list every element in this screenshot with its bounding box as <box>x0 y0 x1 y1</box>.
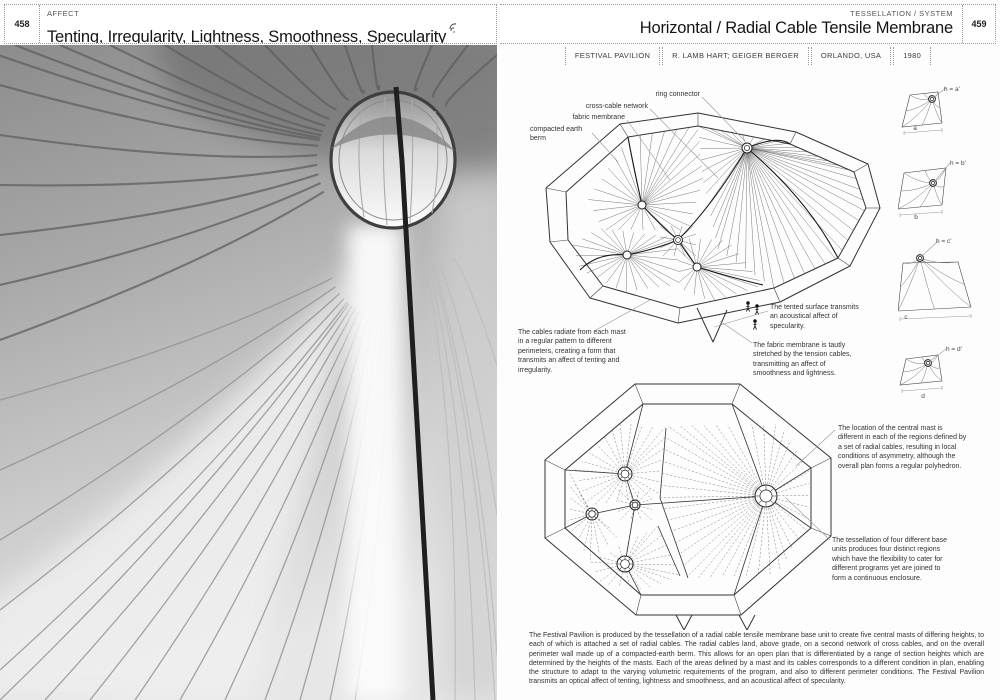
left-page-title: Tenting, Irregularity, Lightness, Smooth… <box>47 19 489 43</box>
left-page-number: 458 <box>5 5 40 43</box>
right-page-header: TESSELLATION / SYSTEM Horizontal / Radia… <box>500 4 996 44</box>
right-section-label: TESSELLATION / SYSTEM <box>507 9 953 18</box>
unit-d-height-label: h = d' <box>946 346 962 353</box>
annotation-cables-radiate: The cables radiate from each mast in a r… <box>518 328 632 375</box>
unit-b-base-label: b <box>914 214 918 221</box>
affect-wave-icon <box>449 19 460 38</box>
book-spread: 458 AFFECT Tenting, Irregularity, Lightn… <box>0 0 1000 700</box>
right-page-title: Horizontal / Radial Cable Tensile Membra… <box>507 19 953 38</box>
project-year: 1980 <box>893 47 931 65</box>
unit-a-height-label: h = a' <box>944 86 960 93</box>
body-text: The Festival Pavilion is produced by the… <box>529 631 984 687</box>
annotation-tessellation-units: The tessellation of four different base … <box>832 536 952 583</box>
project-location: ORLANDO, USA <box>811 47 891 65</box>
right-header-titles: TESSELLATION / SYSTEM Horizontal / Radia… <box>500 5 962 43</box>
unit-b-height-label: h = b' <box>950 160 966 167</box>
label-cross-cable-network: cross-cable network <box>560 103 648 110</box>
base-unit-diagrams <box>898 83 998 413</box>
left-page-header: 458 AFFECT Tenting, Irregularity, Lightn… <box>4 4 497 44</box>
unit-c-height-label: h = c' <box>936 238 952 245</box>
left-section-label: AFFECT <box>47 9 489 18</box>
annotation-fabric-membrane-taut: The fabric membrane is tautly stretched … <box>753 341 859 379</box>
label-fabric-membrane: fabric membrane <box>545 114 625 121</box>
project-info-bar: FESTIVAL PAVILION R. LAMB HART; GEIGER B… <box>500 47 996 65</box>
annotation-tented-surface: The tented surface transmits an acoustic… <box>770 303 862 331</box>
label-compacted-earth-berm: compacted earth berm <box>530 125 592 143</box>
project-name: FESTIVAL PAVILION <box>565 47 660 65</box>
annotation-central-mast: The location of the central mast is diff… <box>838 424 968 471</box>
project-architect: R. LAMB HART; GEIGER BERGER <box>662 47 809 65</box>
unit-a-base-label: a <box>913 125 917 132</box>
unit-d-base-label: d <box>921 393 925 400</box>
right-page-number: 459 <box>962 5 995 43</box>
label-ring-connector: ring connector <box>620 91 700 98</box>
unit-c-base-label: c <box>904 314 907 321</box>
plan-drawing <box>528 378 878 630</box>
tensile-membrane-photo <box>0 45 497 700</box>
left-header-titles: AFFECT Tenting, Irregularity, Lightness,… <box>40 5 496 43</box>
